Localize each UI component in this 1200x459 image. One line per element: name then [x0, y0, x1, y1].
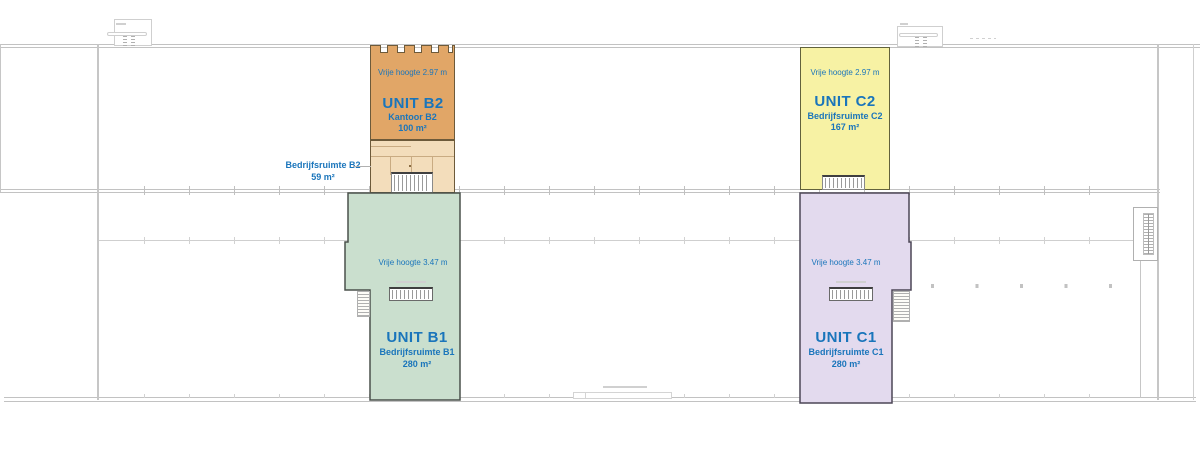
unit-b1-smoke-vent-hatch	[392, 290, 430, 299]
unit-c1-smoke-vent-hatch	[832, 290, 870, 299]
canopy-left-dim-label	[116, 23, 126, 25]
unit-b2-area: 100 m²	[370, 123, 455, 133]
unit-c2-area: 167 m²	[800, 122, 890, 132]
unit-b2-subtitle: Kantoor B2	[370, 112, 455, 122]
unit-b1-area: 280 m²	[370, 359, 464, 369]
unit-b1-subtitle: Bedrijfsruimte B1	[370, 347, 464, 357]
dashed-dim-line	[970, 38, 996, 39]
unit-b1-height-note: Vrije hoogte 3.47 m	[368, 258, 458, 267]
canopy-right-support	[915, 37, 919, 47]
unit-b1-vent-label	[396, 281, 426, 283]
unit-b2-roof-tooth	[404, 45, 415, 53]
wall-right-edge	[1193, 44, 1194, 400]
column-dots-right-hall	[931, 284, 1116, 288]
unit-c2-subtitle: Bedrijfsruimte C2	[800, 111, 890, 121]
unit-c1-subtitle: Bedrijfsruimte C1	[799, 347, 893, 357]
unit-c1-vent-label	[836, 281, 866, 283]
unit-b2-roof-tooth	[452, 45, 455, 53]
unit-c1-area: 280 m²	[799, 359, 893, 369]
unit-b1-title: UNIT B1	[370, 329, 464, 346]
unit-b2-height-note: Vrije hoogte 2.97 m	[370, 68, 455, 77]
annex-partition	[371, 146, 411, 147]
wall-right-corridor	[1140, 261, 1141, 398]
floor-plan-canvas: Vrije hoogte 2.97 m UNIT B2 Kantoor B2 1…	[0, 0, 1200, 459]
canopy-right-support	[923, 37, 927, 47]
unit-b1-smoke-vent	[389, 287, 433, 301]
unit-c2-staircase-treads	[825, 178, 862, 188]
unit-b2-staircase-treads	[394, 175, 430, 191]
canopy-left-support	[123, 36, 127, 46]
wall-left	[97, 44, 99, 400]
wall-left-edge	[0, 44, 1, 192]
annex-door-dot	[409, 165, 411, 167]
annex-label-area: 59 m²	[273, 172, 373, 182]
unit-c1-height-note: Vrije hoogte 3.47 m	[801, 258, 891, 267]
unit-b2-roof-tooth	[370, 45, 381, 53]
column-ticks-mid-wall	[144, 186, 1114, 195]
unit-c2-height-note: Vrije hoogte 2.97 m	[800, 68, 890, 77]
staircase-right-wing-stringer	[1148, 214, 1149, 254]
annex-partition	[371, 156, 454, 157]
unit-b2-roof-tooth	[387, 45, 398, 53]
annex-leader-line	[353, 166, 371, 167]
canopy-left-support	[131, 36, 135, 46]
dock-dim-label	[603, 386, 647, 388]
unit-c2-title: UNIT C2	[798, 93, 892, 110]
canopy-left-beam	[107, 32, 147, 36]
unit-b2-roof-tooth	[421, 45, 432, 53]
canopy-right-dim-label	[900, 23, 908, 25]
dock-detail-step	[585, 392, 586, 399]
unit-c1-smoke-vent	[829, 287, 873, 301]
wall-top	[0, 44, 1200, 48]
unit-c1-side-staircase	[893, 291, 910, 322]
column-ticks-inner-line	[144, 237, 1114, 244]
unit-b2-roof-tooth	[438, 45, 449, 53]
unit-c1-title: UNIT C1	[799, 329, 893, 346]
unit-c2-staircase	[822, 175, 865, 190]
unit-b2-staircase	[391, 172, 433, 193]
unit-b2-title: UNIT B2	[368, 95, 458, 112]
dock-detail	[573, 392, 672, 399]
unit-b1-side-staircase	[357, 291, 370, 317]
